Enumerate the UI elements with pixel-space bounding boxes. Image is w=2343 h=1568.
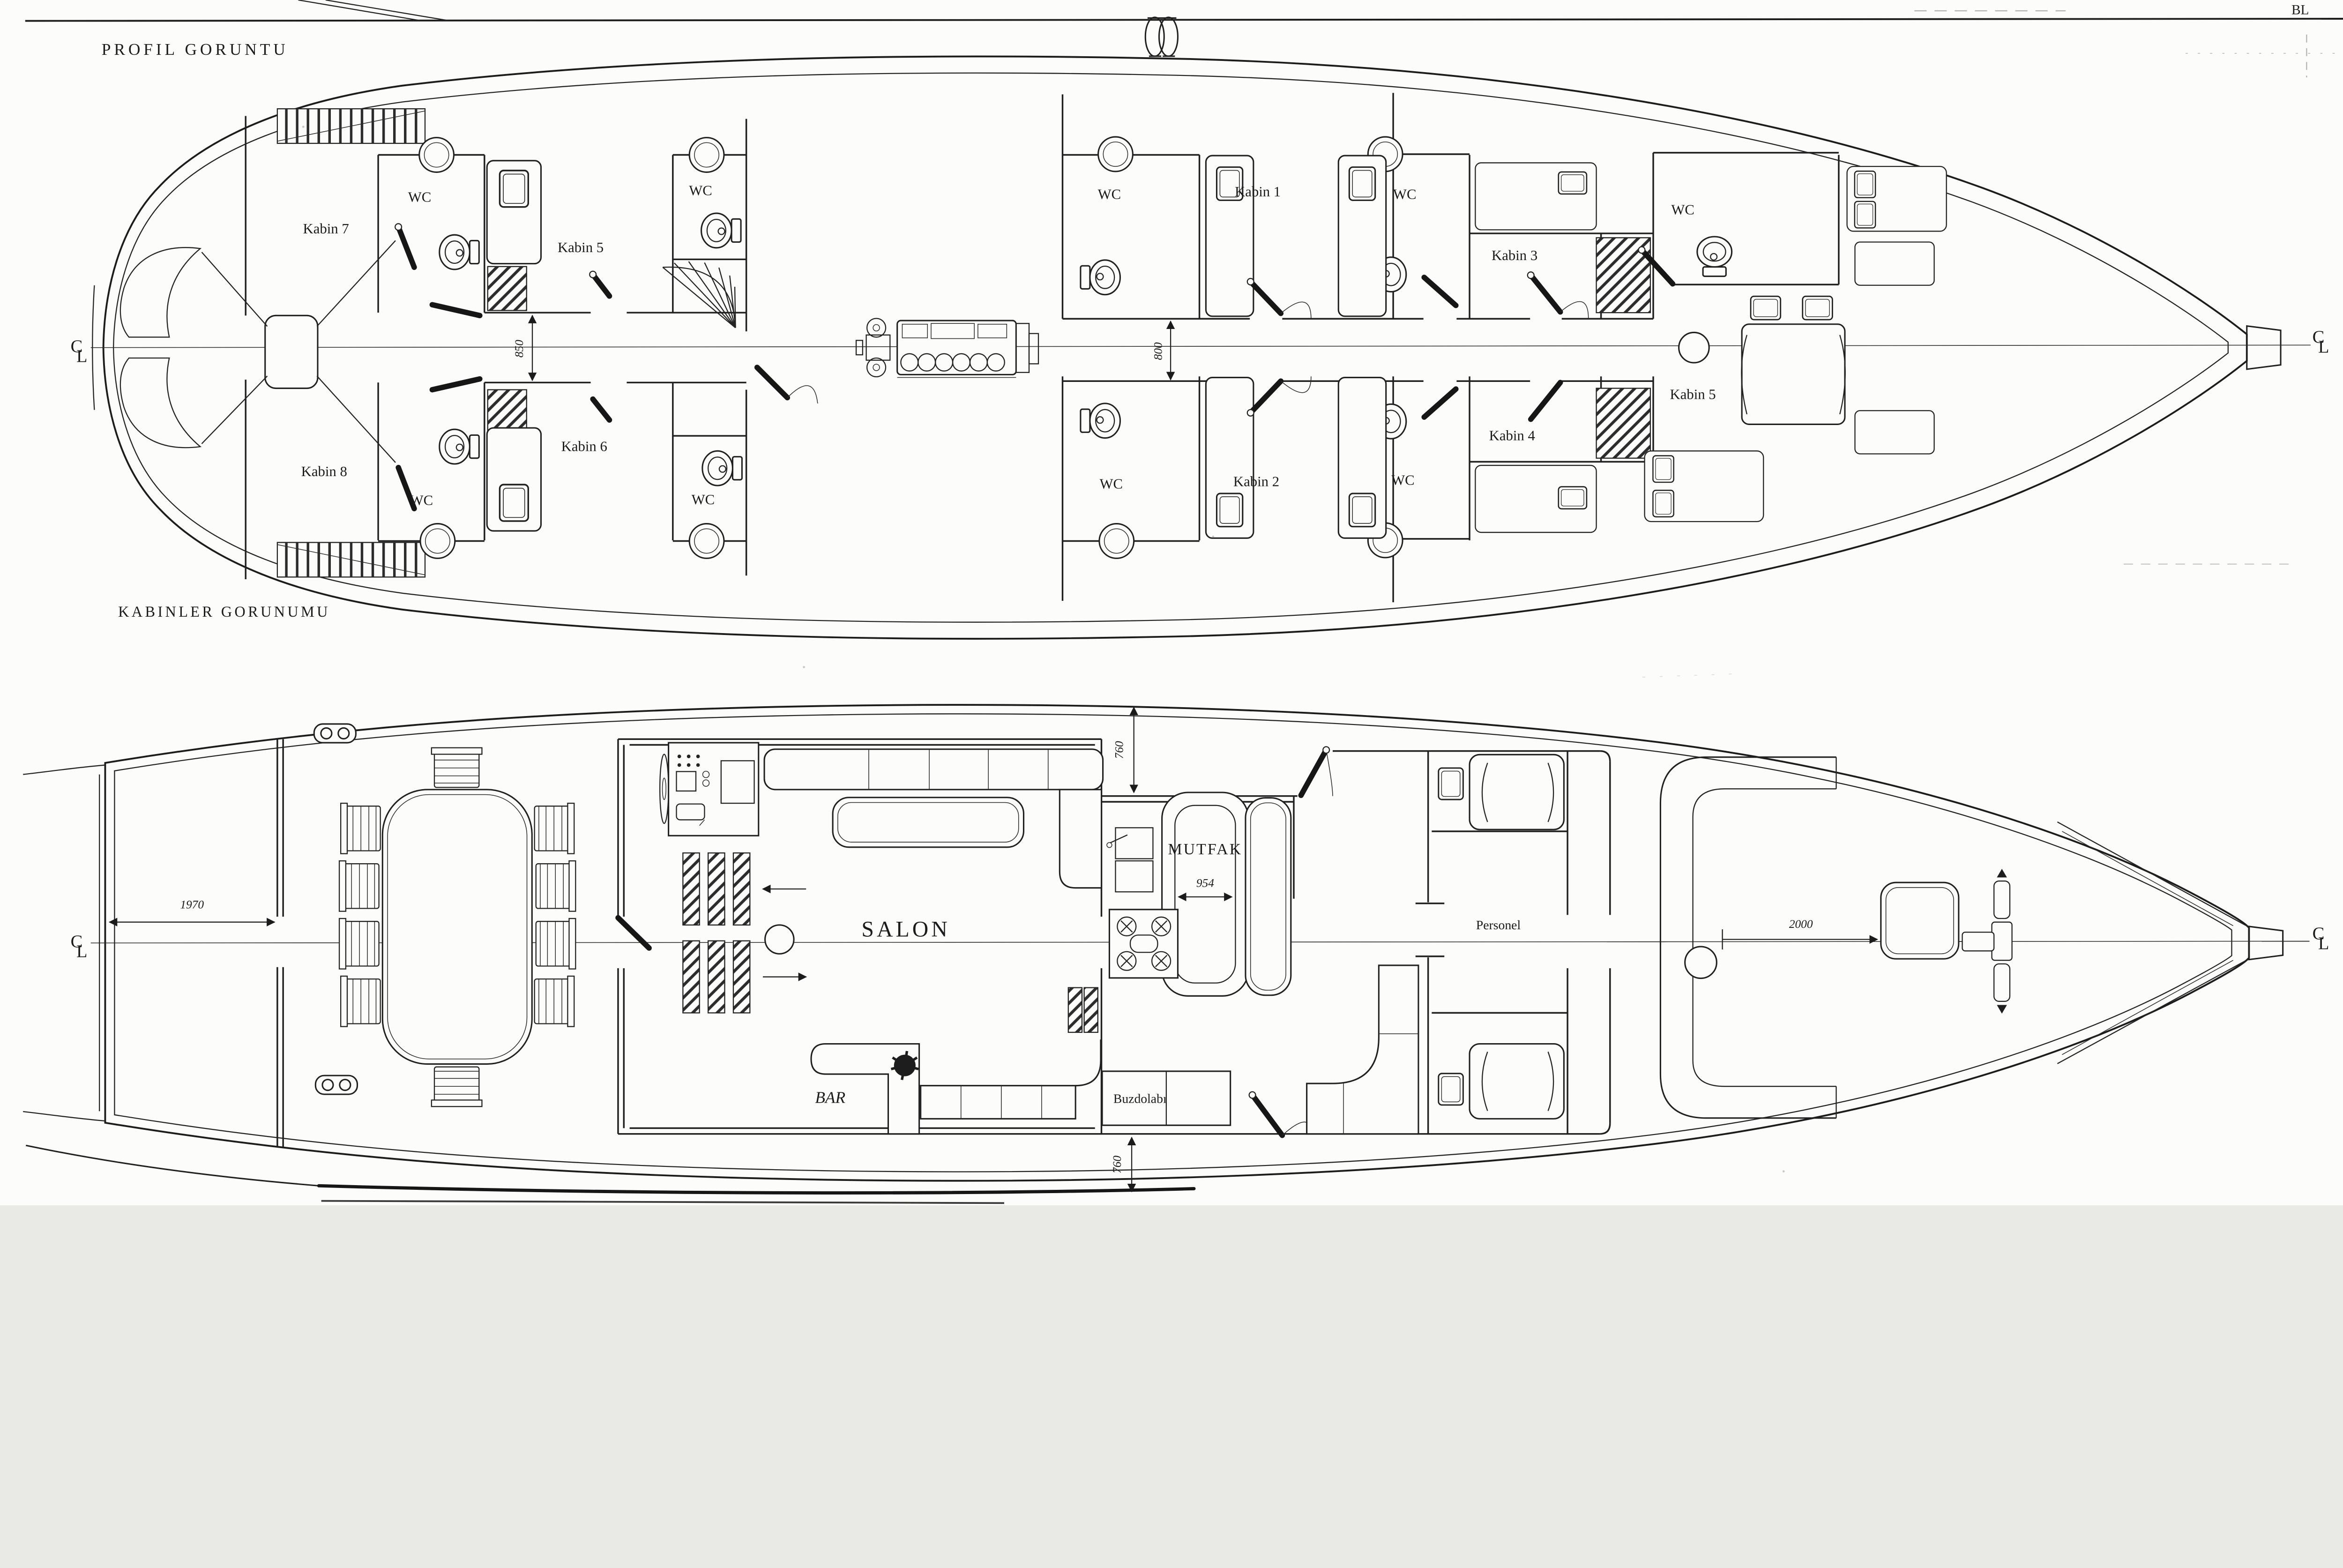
upper-cl-left xyxy=(71,337,88,366)
dim-760-top: 760 xyxy=(1113,741,1126,759)
salon-bench-bottom xyxy=(921,1086,1076,1119)
label-kabin5-mid: Kabin 5 xyxy=(558,239,604,255)
salon-table xyxy=(833,798,1023,847)
label-kabin3: Kabin 3 xyxy=(1492,247,1537,263)
profile-title: PROFIL GORUNTU xyxy=(102,40,289,59)
label-wc: WC xyxy=(410,493,433,508)
label-kabin7: Kabin 7 xyxy=(303,221,349,237)
helm-console xyxy=(660,743,759,836)
foredeck: 2000 xyxy=(1660,757,2012,1118)
windlass-icon xyxy=(1962,869,2012,1014)
label-salon: SALON xyxy=(861,917,950,941)
fore-hatch xyxy=(1881,882,1959,959)
label-wc: WC xyxy=(1393,186,1417,202)
side-table xyxy=(765,925,794,954)
upper-bulkheads xyxy=(246,93,1839,602)
ship-plan-drawing: C L BL PROFIL GORUNTU xyxy=(0,0,2343,1205)
salon-sofa-right xyxy=(1060,790,1101,888)
label-wc: WC xyxy=(1671,202,1694,217)
salon-sofa-top xyxy=(764,749,1103,790)
label-wc: WC xyxy=(1391,472,1415,488)
top-strip: BL xyxy=(25,0,2343,77)
locker xyxy=(1597,388,1650,458)
lower-cl-right xyxy=(2313,924,2329,954)
label-kabin2: Kabin 2 xyxy=(1233,474,1279,490)
lower-stem xyxy=(2249,926,2283,960)
locker xyxy=(488,267,527,311)
dim-800: 800 xyxy=(1152,342,1165,360)
galley: MUTFAK 954 Buzdolabı xyxy=(1102,747,1333,1135)
stove-icon xyxy=(1109,910,1178,978)
label-kabin4: Kabin 4 xyxy=(1489,427,1535,443)
stairs-icon xyxy=(663,261,735,328)
label-personel: Personel xyxy=(1476,918,1521,932)
dim-760-bottom: 760 xyxy=(1111,1156,1124,1173)
capstan-icon xyxy=(1145,17,1178,56)
mast xyxy=(1685,947,1717,978)
label-kabin5-bow: Kabin 5 xyxy=(1670,387,1716,403)
label-kabin8: Kabin 8 xyxy=(301,463,347,479)
crew-sofa xyxy=(1307,965,1418,1134)
upper-dims: 850 800 xyxy=(513,315,1171,380)
label-wc: WC xyxy=(1099,476,1123,492)
aft-deck: 1970 xyxy=(110,724,576,1147)
label-wc: WC xyxy=(408,189,432,205)
lower-cl-left xyxy=(71,932,88,962)
dim-850: 850 xyxy=(513,340,526,358)
label-wc: WC xyxy=(692,492,715,508)
dim-2000: 2000 xyxy=(1789,918,1813,931)
label-kabin6: Kabin 6 xyxy=(561,438,607,454)
dining-table xyxy=(382,790,532,1064)
locker xyxy=(488,390,527,434)
label-mutfak: MUTFAK xyxy=(1168,841,1243,858)
cabins-title: KABINLER GORUNUMU xyxy=(118,603,330,620)
galley-sink xyxy=(1115,828,1153,859)
dim-954: 954 xyxy=(1196,876,1214,889)
bow-seating xyxy=(1660,757,1836,1118)
engine-icon xyxy=(856,318,1038,377)
upper-centerline xyxy=(91,345,2311,347)
upper-stem xyxy=(2247,326,2281,369)
crew-area: Personel xyxy=(1307,754,1564,1134)
salon: SALON BAR xyxy=(618,743,1103,1134)
galley-peninsula xyxy=(1246,798,1291,995)
label-buzdolabi: Buzdolabı xyxy=(1113,1091,1167,1106)
lower-plan: KABINLER GORUNUMU 1970 xyxy=(23,603,2329,1203)
label-kabin1: Kabin 1 xyxy=(1235,184,1281,200)
upper-plan: PROFIL GORUNTU xyxy=(71,40,2329,639)
upper-cl-right xyxy=(2313,328,2329,357)
label-bar: BAR xyxy=(815,1088,845,1107)
label-wc: WC xyxy=(1098,186,1121,202)
stern-seating xyxy=(120,240,395,462)
dim-1970: 1970 xyxy=(180,898,204,911)
baseline-label: BL xyxy=(2291,3,2309,18)
label-wc: WC xyxy=(689,183,712,199)
blueprint-page: C L BL PROFIL GORUNTU xyxy=(0,0,2343,1205)
